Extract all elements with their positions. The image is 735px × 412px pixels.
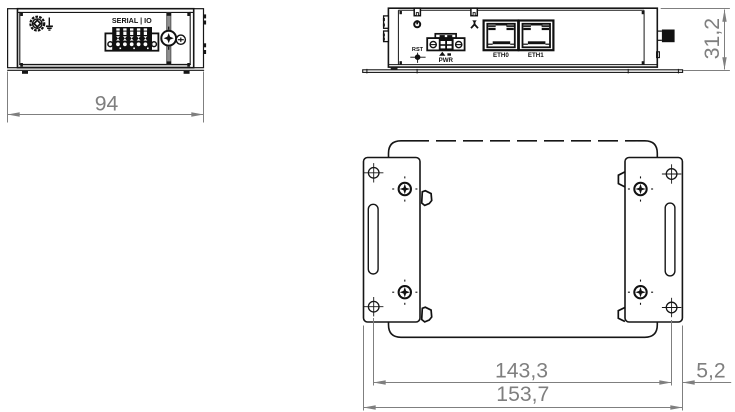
svg-text:RST: RST (412, 47, 424, 53)
svg-text:5,2: 5,2 (696, 359, 725, 382)
svg-text:31,2: 31,2 (701, 18, 724, 59)
svg-text:143,3: 143,3 (495, 359, 548, 382)
svg-text:SERIAL | IO: SERIAL | IO (112, 16, 152, 25)
svg-text:ETH1: ETH1 (528, 52, 544, 59)
svg-text:153,7: 153,7 (496, 383, 549, 406)
svg-text:PWR: PWR (439, 57, 454, 64)
svg-text:ETH0: ETH0 (493, 52, 509, 59)
svg-text:94: 94 (95, 92, 119, 115)
